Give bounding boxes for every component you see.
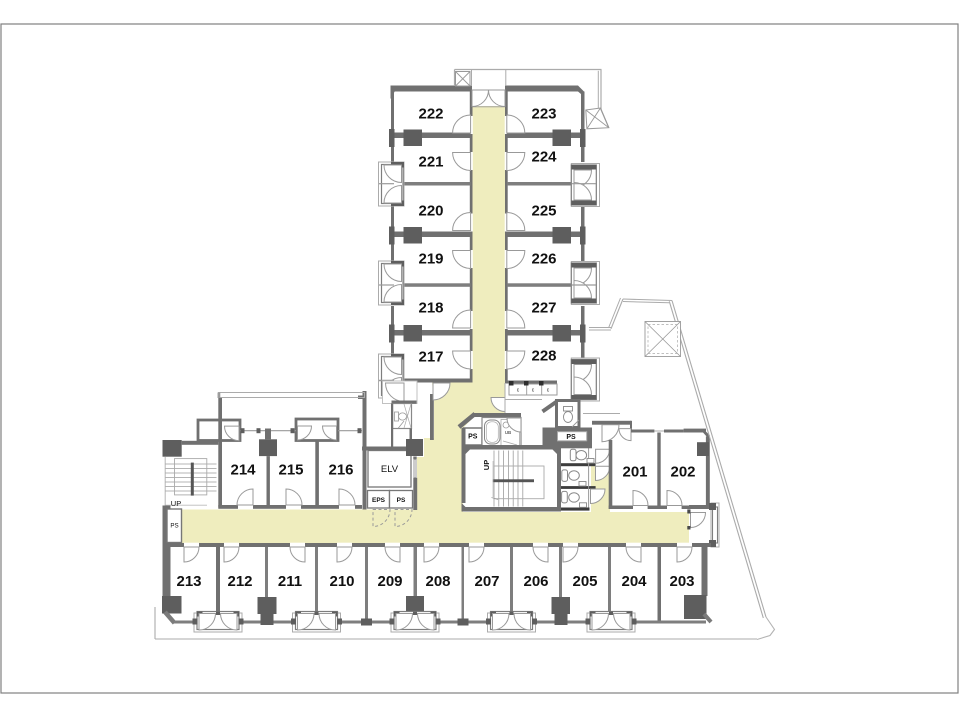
svg-text:224: 224 [531, 149, 557, 166]
svg-text:219: 219 [418, 251, 443, 268]
svg-text:218: 218 [418, 300, 443, 317]
svg-text:ELV: ELV [381, 464, 399, 475]
svg-text:UP: UP [482, 460, 491, 470]
svg-text:212: 212 [227, 573, 252, 590]
svg-text:223: 223 [531, 106, 556, 123]
svg-text:222: 222 [418, 106, 443, 123]
svg-text:227: 227 [531, 300, 556, 317]
svg-text:221: 221 [418, 154, 443, 171]
svg-text:217: 217 [418, 349, 443, 366]
svg-text:203: 203 [669, 573, 694, 590]
svg-text:UB: UB [505, 430, 511, 435]
svg-text:206: 206 [523, 573, 548, 590]
svg-text:205: 205 [572, 573, 597, 590]
svg-text:PS: PS [397, 497, 406, 504]
svg-text:211: 211 [278, 573, 302, 590]
svg-text:215: 215 [278, 462, 303, 479]
svg-text:201: 201 [622, 464, 647, 481]
svg-text:PS: PS [170, 523, 178, 530]
svg-text:207: 207 [474, 573, 499, 590]
svg-text:213: 213 [176, 573, 201, 590]
svg-text:UP: UP [171, 499, 181, 508]
svg-text:228: 228 [531, 348, 556, 365]
svg-text:210: 210 [329, 573, 354, 590]
svg-text:208: 208 [425, 573, 450, 590]
svg-text:EPS: EPS [372, 497, 386, 504]
svg-text:PS: PS [566, 434, 576, 441]
svg-text:214: 214 [230, 462, 256, 479]
svg-text:202: 202 [670, 464, 695, 481]
svg-text:226: 226 [531, 251, 556, 268]
svg-text:225: 225 [531, 203, 556, 220]
svg-text:216: 216 [328, 462, 353, 479]
svg-text:PS: PS [468, 434, 478, 441]
svg-text:220: 220 [418, 203, 443, 220]
svg-text:204: 204 [621, 573, 647, 590]
svg-text:209: 209 [377, 573, 402, 590]
